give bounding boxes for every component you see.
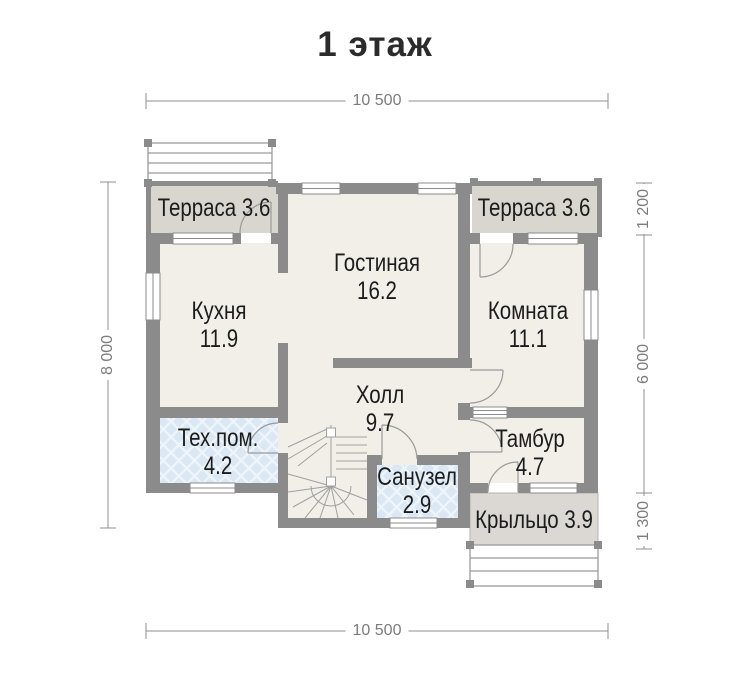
room-label-tech: Тех.пом. 4.2: [178, 424, 259, 480]
room-label-living: Гостиная 16.2: [334, 249, 420, 305]
window-room-terrace: [528, 233, 578, 244]
dim-top: 10 500: [346, 92, 409, 110]
dim-right-middle: 6 000: [635, 339, 653, 389]
dim-left: 8 000: [99, 330, 117, 380]
page-title: 1 этаж: [317, 25, 432, 65]
room-label-hall: Холл 9.7: [356, 381, 404, 437]
dim-right-top: 1 200: [635, 184, 653, 234]
window-living-1: [302, 183, 340, 194]
room-label-room: Комната 11.1: [488, 297, 568, 353]
room-label-bathroom: Санузел 2.9: [377, 463, 457, 519]
window-tambour-interior: [473, 407, 507, 418]
window-bathroom-south: [390, 518, 437, 528]
floor-plan-page: 1 этаж 10 500 10 500 8 000 1 200 6 000 1…: [0, 0, 750, 688]
window-room-east: [584, 290, 598, 340]
window-tambour-south: [530, 483, 577, 493]
room-label-kitchen: Кухня 11.9: [192, 297, 247, 353]
dim-right-bottom: 1 300: [635, 496, 653, 546]
window-living-2: [418, 183, 456, 194]
room-label-tambour: Тамбур 4.7: [495, 425, 565, 481]
window-kitchen-west: [146, 273, 160, 320]
window-kitchen-terrace: [173, 233, 233, 244]
room-label-terrace-right: Терраса 3.6: [478, 194, 591, 222]
terrace-right-railing: [472, 181, 602, 186]
dim-bottom: 10 500: [346, 622, 409, 640]
window-tech-south: [190, 483, 235, 493]
room-label-terrace-left: Терраса 3.6: [158, 194, 271, 222]
porch-steps: [470, 545, 598, 586]
terrace-left-railing: [146, 181, 278, 186]
room-label-porch: Крыльцо 3.9: [475, 506, 593, 534]
